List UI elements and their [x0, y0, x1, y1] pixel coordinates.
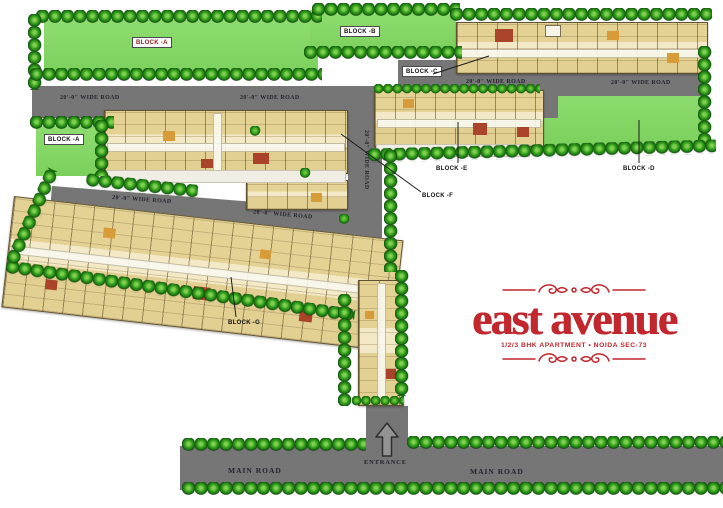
- building-accent: [201, 159, 213, 168]
- tree-column: [698, 46, 712, 144]
- building-block-f-wing: [246, 180, 348, 210]
- building-accent: [607, 31, 619, 40]
- building-accent: [403, 99, 414, 108]
- bush: [339, 214, 350, 225]
- building-accent: [667, 53, 679, 63]
- building-accent: [163, 131, 175, 141]
- building-accent: [260, 249, 272, 259]
- building-block-c: [456, 22, 708, 74]
- road-label-wide-2: 20'-0" WIDE ROAD: [240, 95, 300, 101]
- tree-column: [384, 150, 398, 272]
- main-road-label-right: MAIN ROAD: [470, 467, 524, 476]
- tree-row: [450, 8, 712, 22]
- bush-row: [352, 396, 404, 407]
- flourish-icon: [499, 351, 649, 367]
- building-accent: [473, 123, 487, 135]
- building-accent: [311, 193, 322, 202]
- block-e-label: BLOCK -E: [436, 166, 467, 172]
- road-label-wide-1: 20'-0" WIDE ROAD: [60, 95, 120, 101]
- block-a-small-label: BLOCK -A: [44, 134, 84, 145]
- tree-row: [407, 436, 723, 450]
- road-label-wide-4: 20'-0" WIDE ROAD: [611, 80, 671, 86]
- tree-row: [304, 46, 462, 60]
- building-block-f: [104, 110, 348, 174]
- block-d-label: BLOCK -D: [623, 166, 655, 172]
- tree-row: [312, 3, 460, 17]
- tree-row: [36, 10, 322, 24]
- tree-row: [182, 482, 723, 496]
- tree-column: [95, 120, 109, 176]
- entrance-label: ENTRANCE: [364, 459, 407, 466]
- tree-row: [30, 68, 322, 82]
- bush: [300, 168, 311, 179]
- building-corridor: [213, 113, 222, 171]
- logo: east avenue 1/2/3 BHK APARTMENT • NOIDA …: [438, 282, 710, 367]
- lawn-block-d: [541, 93, 703, 147]
- site-plan: 20'-0" WIDE ROAD 20'-0" WIDE ROAD 20'-0"…: [0, 0, 723, 508]
- block-c-label: BLOCK -C: [402, 66, 442, 77]
- logo-wordmark: east avenue: [438, 298, 710, 340]
- bush-row: [374, 84, 540, 95]
- building-accent: [253, 153, 269, 164]
- block-b-label: BLOCK -B: [340, 26, 380, 37]
- building-corridor: [377, 283, 386, 403]
- building-block-e: [374, 90, 544, 147]
- block-f-label: BLOCK -F: [422, 193, 453, 199]
- tree-column: [338, 294, 352, 406]
- building-accent: [495, 29, 513, 42]
- building-accent: [365, 311, 374, 319]
- building-accent: [103, 227, 116, 238]
- block-a-lawn-label: BLOCK -A: [132, 37, 172, 48]
- building-accent: [517, 127, 529, 137]
- block-g-label: BLOCK -G: [228, 320, 260, 326]
- tree-column: [395, 270, 409, 396]
- building-corridor: [107, 143, 345, 152]
- bush: [250, 126, 261, 137]
- main-road-label-left: MAIN ROAD: [228, 466, 282, 475]
- tree-row: [182, 438, 366, 452]
- building-accent: [545, 25, 561, 37]
